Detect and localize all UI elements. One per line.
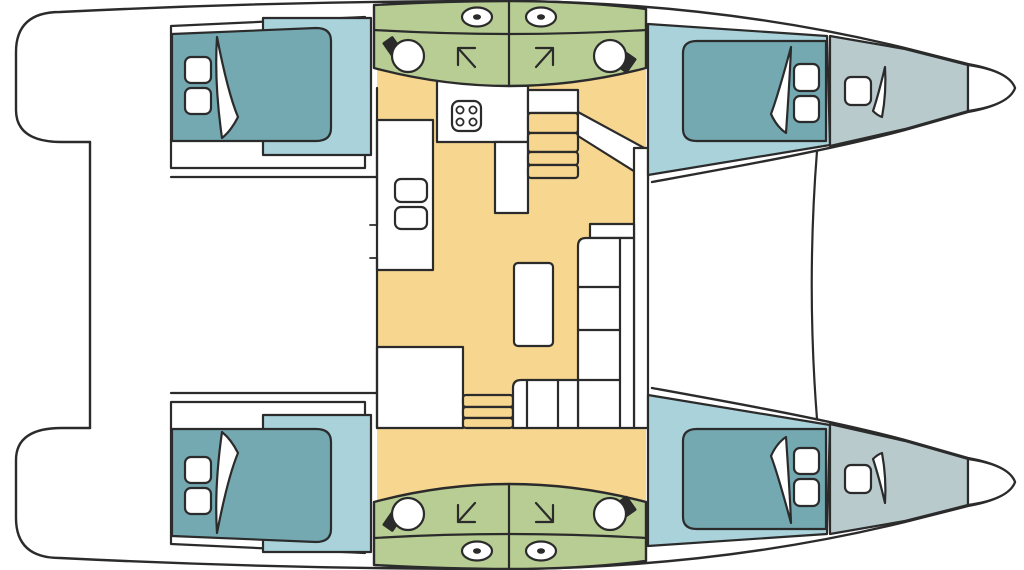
sofa-bottom-seat [513, 380, 578, 428]
stair-landing-top [528, 90, 578, 113]
stairwell-side-counter [495, 142, 528, 213]
forepeak-hatch [845, 465, 871, 493]
bathrooms-bottom-hull [374, 484, 646, 569]
double-bed [172, 429, 331, 542]
toilet [462, 542, 492, 561]
stair-step [528, 165, 578, 178]
pillow [794, 64, 819, 91]
pillow [185, 57, 211, 83]
floorplan-svg [0, 0, 1024, 570]
aft-cabin-bottom-hull [171, 402, 371, 553]
toilet [526, 8, 556, 27]
dinette-table [514, 263, 553, 346]
pillow [794, 96, 819, 122]
pillow [794, 479, 819, 506]
stair-step [463, 395, 513, 407]
bathrooms-top-hull [374, 1, 646, 86]
forepeak-hatch [845, 77, 871, 105]
bow-tip [968, 65, 1015, 111]
pillow [185, 88, 211, 114]
pillow [185, 488, 211, 514]
saloon-forward-wall [634, 148, 648, 428]
stair-step [528, 152, 578, 165]
sofa-vertical-seat [578, 238, 634, 428]
stair-step [528, 133, 578, 152]
staircase-bottom-hull [463, 395, 513, 428]
catamaran-floorplan [0, 0, 1024, 570]
forward-crossbeam-line [812, 151, 817, 419]
sofa-shelf [590, 224, 634, 238]
stair-step [463, 407, 513, 418]
forward-cabin-top-hull [648, 24, 1015, 175]
aft-cabin-top-hull [171, 17, 371, 168]
stair-step [463, 418, 513, 428]
galley-cabinet [377, 347, 463, 428]
stove [452, 101, 481, 131]
stair-step [528, 113, 578, 133]
pillow [794, 448, 819, 474]
pillow [185, 457, 211, 483]
toilet [462, 8, 492, 27]
double-bed [172, 28, 331, 141]
forward-cabin-bottom-hull [648, 395, 1015, 546]
toilet [526, 542, 556, 561]
bow-tip [968, 459, 1015, 505]
